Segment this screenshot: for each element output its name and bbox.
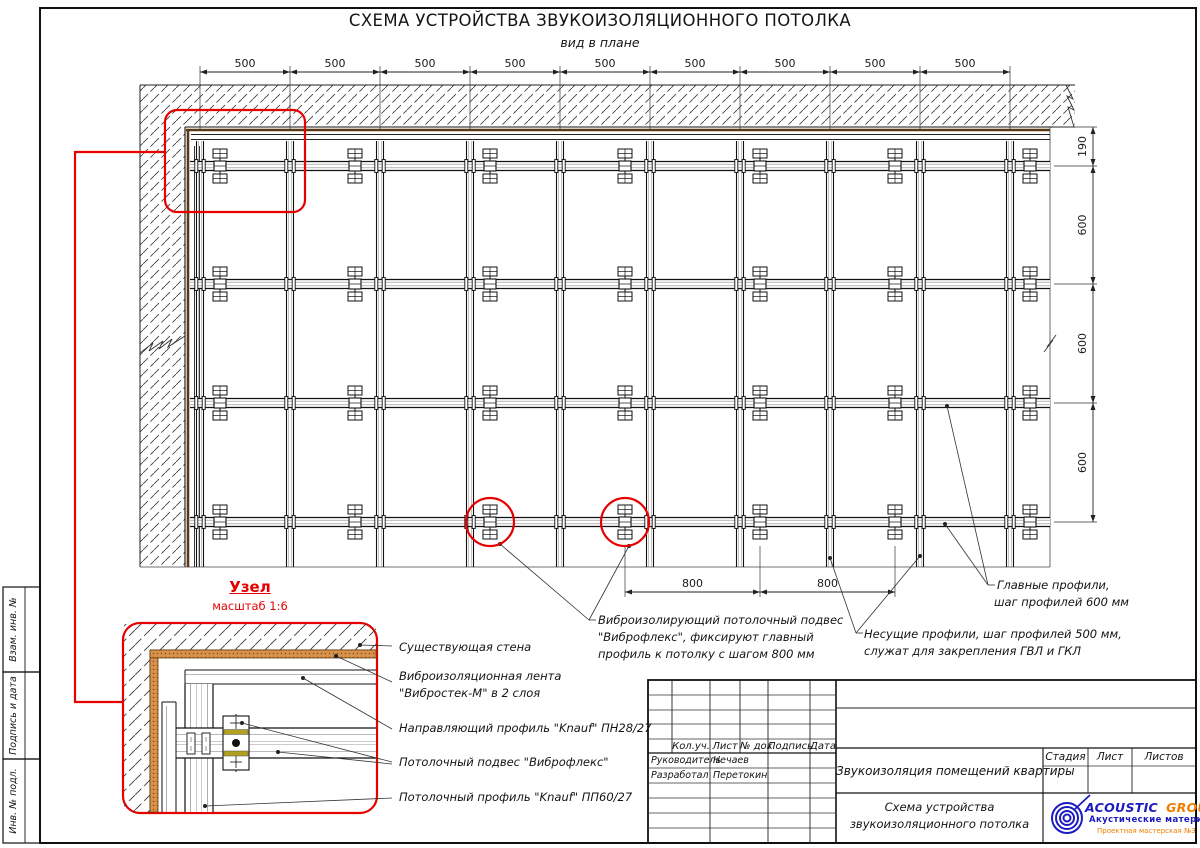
tb-header-data: Дата [810, 741, 836, 752]
tb-stage-header-listov: Листов [1132, 751, 1196, 763]
dim-label: 500 [865, 57, 886, 70]
tb-role-1: Руководитель [651, 755, 721, 766]
dim-label: 600 [1076, 215, 1089, 236]
detail-scale: масштаб 1:6 [190, 599, 310, 613]
dim-label: 500 [685, 57, 706, 70]
plan-view [140, 85, 1075, 567]
logo-acoustic-text: ACOUSTIC [1085, 800, 1158, 815]
tb-header-list: Лист [710, 741, 740, 752]
note-hanger-line2: "Виброфлекс", фиксируют главный [598, 630, 814, 644]
dim-label: 500 [235, 57, 256, 70]
callout-existing-wall: Существующая стена [399, 640, 531, 654]
detail-title: Узел [190, 578, 310, 596]
callout-tape-line1: Виброизоляционная лента [399, 669, 561, 683]
logo-wordmark: ACOUSTIC GROUP [1085, 797, 1200, 816]
dim-label: 800 [817, 577, 838, 590]
margin-label-vzam: Взам. инв. № [3, 587, 25, 672]
logo-tagline: Акустические материалы [1089, 815, 1200, 825]
dim-label: 500 [415, 57, 436, 70]
logo-group-text: GROUP [1166, 800, 1200, 815]
note-main-profile-line2: шаг профилей 600 мм [994, 595, 1129, 609]
tb-header-koluch: Кол.уч. [672, 741, 710, 752]
detail-view [124, 624, 376, 812]
note-carrier-line1: Несущие профили, шаг профилей 500 мм, [864, 627, 1122, 641]
tb-name-1: Нечаев [713, 755, 749, 766]
tb-name-2: Перетокин [713, 770, 767, 781]
dim-label: 500 [325, 57, 346, 70]
page-subtitle: вид в плане [280, 35, 920, 50]
tb-role-2: Разработал [651, 770, 709, 781]
note-main-profile-line1: Главные профили, [997, 578, 1110, 592]
dim-label: 500 [505, 57, 526, 70]
dim-label: 600 [1076, 452, 1089, 473]
margin-label-inv: Инв. № подл. [3, 759, 25, 843]
tb-stage-header-list: Лист [1088, 751, 1132, 763]
callout-guide-profile: Направляющий профиль "Knauf" ПН28/27 [399, 721, 652, 735]
callout-ceiling-hanger: Потолочный подвес "Виброфлекс" [399, 755, 609, 769]
page-title: СХЕМА УСТРОЙСТВА ЗВУКОИЗОЛЯЦИОННОГО ПОТО… [280, 11, 920, 30]
dim-label: 500 [595, 57, 616, 70]
dim-label: 600 [1076, 333, 1089, 354]
drawing-sheet: 5005005005005005005005005001906006006008… [0, 0, 1200, 848]
tb-header-ndok: № док [740, 741, 768, 752]
note-hanger-line3: профиль к потолку с шагом 800 мм [598, 647, 815, 661]
dim-label: 500 [775, 57, 796, 70]
tb-header-podpis: Подпись [768, 741, 810, 752]
dim-label: 800 [682, 577, 703, 590]
dim-label: 190 [1076, 136, 1089, 157]
logo-subline: Проектная мастерская №3 [1097, 827, 1196, 835]
dim-label: 500 [955, 57, 976, 70]
callout-tape-line2: "Вибростек-М" в 2 слоя [399, 686, 540, 700]
tb-project-name: Звукоизоляция помещений квартиры [836, 764, 1043, 778]
margin-label-podpis: Подпись и дата [3, 672, 25, 759]
note-carrier-line2: служат для закрепления ГВЛ и ГКЛ [864, 644, 1081, 658]
note-hanger-line1: Виброизолирующий потолочный подвес [598, 613, 843, 627]
callout-ceiling-profile: Потолочный профиль "Knauf" ПП60/27 [399, 790, 632, 804]
tb-sheet-title-line1: Схема устройства [836, 800, 1043, 814]
tb-sheet-title-line2: звукоизоляционного потолка [836, 817, 1043, 831]
tb-stage-header-stadia: Стадия [1043, 751, 1088, 763]
